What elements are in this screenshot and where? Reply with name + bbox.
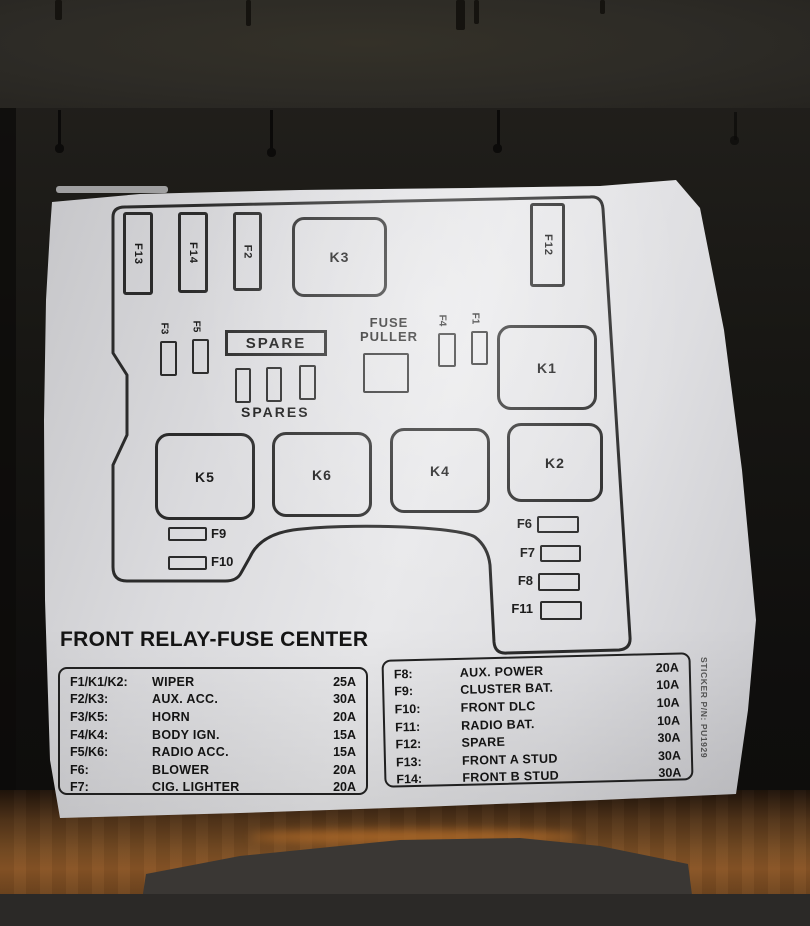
spares-label: SPARES <box>241 404 310 420</box>
legend-row: F8:AUX. POWER20A <box>384 658 689 683</box>
top-edge-mark <box>246 0 251 26</box>
fuse-F14-label: F14 <box>187 242 199 264</box>
relay-K2: K2 <box>507 423 603 502</box>
fuse-F9-label: F9 <box>211 526 226 541</box>
spare-box: SPARE <box>225 330 327 356</box>
spare-fuse-slot <box>299 365 316 400</box>
legend-row: F2/K3:AUX. ACC.30A <box>60 691 366 709</box>
fuse-F4 <box>438 333 456 367</box>
hanging-pin <box>270 110 273 152</box>
hanging-pin <box>497 110 500 148</box>
relay-K6-label: K6 <box>312 467 332 483</box>
fuse-F6-label: F6 <box>500 516 532 531</box>
fuse-F11-label: F11 <box>493 601 533 616</box>
fuse-F14: F14 <box>178 212 208 293</box>
fuse-F1 <box>471 331 488 365</box>
fuse-F13-label: F13 <box>132 243 144 265</box>
fuse-F8 <box>538 573 580 591</box>
legend-row: F11:RADIO BAT.10A <box>385 711 690 736</box>
top-edge-mark <box>456 0 465 30</box>
fuse-F12: F12 <box>530 203 565 287</box>
fuse-F11 <box>540 601 582 620</box>
spare-label: SPARE <box>246 335 307 352</box>
dark-bottom-band <box>0 894 810 926</box>
fuse-F8-label: F8 <box>501 573 533 588</box>
fuse-puller-box <box>363 353 409 393</box>
legend-row: F14:FRONT B STUD30A <box>386 764 691 789</box>
fuse-F10-label: F10 <box>211 554 233 569</box>
relay-K4: K4 <box>390 428 490 513</box>
legend-row: F3/K5:HORN20A <box>60 708 366 726</box>
top-edge-mark <box>600 0 605 14</box>
legend-row: F1/K1/K2:WIPER25A <box>60 673 366 691</box>
fuse-F10 <box>168 556 207 570</box>
fuse-F2-label: F2 <box>242 244 254 259</box>
fuse-center-sticker: F13 F14 F2 K3 F12 F3 F5 SPARE FUSE PULLE… <box>44 178 758 820</box>
light-streak <box>56 186 168 193</box>
left-shadow-edge <box>0 108 16 808</box>
fuse-box-outline <box>45 185 665 685</box>
spare-fuse-slot <box>266 367 282 402</box>
relay-K6: K6 <box>272 432 372 517</box>
spare-fuse-slot <box>235 368 251 403</box>
fuse-F3 <box>160 341 177 376</box>
legend-row: F9:CLUSTER BAT.10A <box>384 676 689 701</box>
top-edge-mark <box>55 0 62 20</box>
relay-K2-label: K2 <box>545 455 565 471</box>
fuse-F5 <box>192 339 209 374</box>
fuse-F9 <box>168 527 207 541</box>
sticker-title: FRONT RELAY-FUSE CENTER <box>60 628 368 652</box>
fuse-F1-label: F1 <box>469 313 480 325</box>
legend-table-right: F8:AUX. POWER20A F9:CLUSTER BAT.10A F10:… <box>381 652 693 788</box>
fuse-F4-label: F4 <box>436 315 447 327</box>
legend-row: F12:SPARE30A <box>385 729 690 754</box>
fuse-F2: F2 <box>233 212 262 291</box>
relay-K3-label: K3 <box>330 249 350 265</box>
photo-of-fuse-box-sticker: F13 F14 F2 K3 F12 F3 F5 SPARE FUSE PULLE… <box>0 0 810 926</box>
fuse-puller-label: FUSE PULLER <box>345 316 433 344</box>
relay-K1-label: K1 <box>537 360 557 376</box>
legend-table-left: F1/K1/K2:WIPER25A F2/K3:AUX. ACC.30A F3/… <box>58 667 368 795</box>
legend-row: F7:CIG. LIGHTER20A <box>60 779 366 797</box>
relay-K3: K3 <box>292 217 387 297</box>
fuse-F3-label: F3 <box>158 323 169 335</box>
legend-row: F10:FRONT DLC10A <box>384 693 689 718</box>
pin-tip <box>493 144 502 153</box>
relay-K5-label: K5 <box>195 469 215 485</box>
fuse-F5-label: F5 <box>190 321 201 333</box>
sticker-part-number: STICKER P/N: PU1929 <box>699 657 709 758</box>
hanging-pin <box>58 110 61 148</box>
pin-tip <box>55 144 64 153</box>
relay-K1: K1 <box>497 325 597 410</box>
fuse-F6 <box>537 516 579 533</box>
dark-top-band <box>0 0 810 108</box>
pin-tip <box>267 148 276 157</box>
fuse-F12-label: F12 <box>542 234 554 256</box>
legend-row: F6:BLOWER20A <box>60 761 366 779</box>
fuse-F7 <box>540 545 581 562</box>
legend-row: F4/K4:BODY IGN.15A <box>60 726 366 744</box>
fuse-F13: F13 <box>123 212 153 295</box>
pin-tip <box>730 136 739 145</box>
fuse-F7-label: F7 <box>503 545 535 560</box>
relay-K5: K5 <box>155 433 255 520</box>
legend-row: F5/K6:RADIO ACC.15A <box>60 743 366 761</box>
relay-K4-label: K4 <box>430 463 450 479</box>
legend-row: F13:FRONT A STUD30A <box>386 746 691 771</box>
top-edge-mark <box>474 0 479 24</box>
